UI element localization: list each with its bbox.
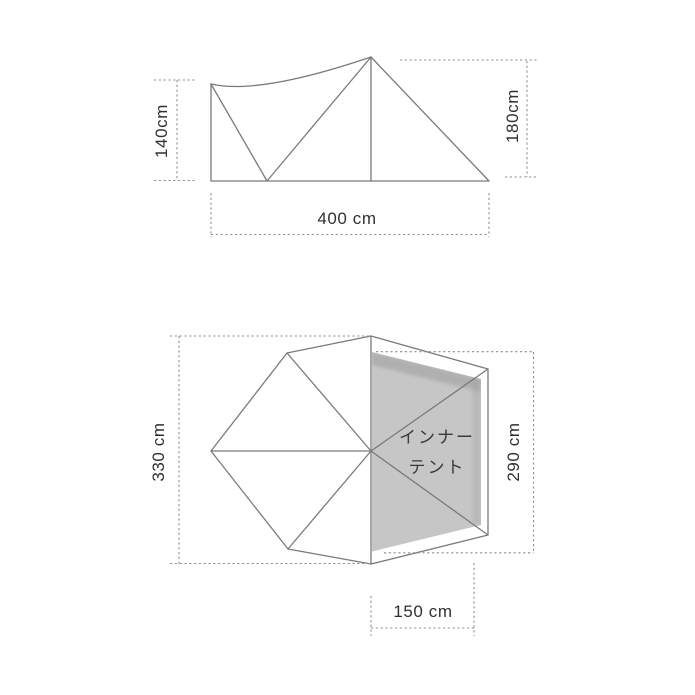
inner-tent-label: インナー テント (399, 423, 475, 483)
inner-tent-label-line2: テント (399, 453, 475, 483)
plan-spoke-upper-left (287, 353, 371, 451)
plan-inner-width-label: 150 cm (393, 602, 452, 622)
elevation-width-label: 400 cm (317, 209, 376, 229)
plan-spoke-lower-left (288, 451, 371, 549)
plan-outer-depth-label: 330 cm (149, 422, 169, 481)
inner-tent-label-line1: インナー (399, 423, 475, 453)
tent-diagram-svg (0, 0, 695, 695)
elevation-left-height-label: 140cm (152, 104, 172, 158)
elevation-right-slope (371, 57, 489, 181)
elevation-outline (211, 57, 489, 181)
plan-inner-depth-label: 290 cm (504, 422, 524, 481)
elevation-ridge-curve (211, 57, 371, 86)
tent-dimension-diagram: 140cm 180cm 400 cm 330 cm 290 cm 150 cm … (0, 0, 695, 695)
elevation-right-height-label: 180cm (503, 89, 523, 143)
elevation-guy-lines (211, 57, 371, 181)
